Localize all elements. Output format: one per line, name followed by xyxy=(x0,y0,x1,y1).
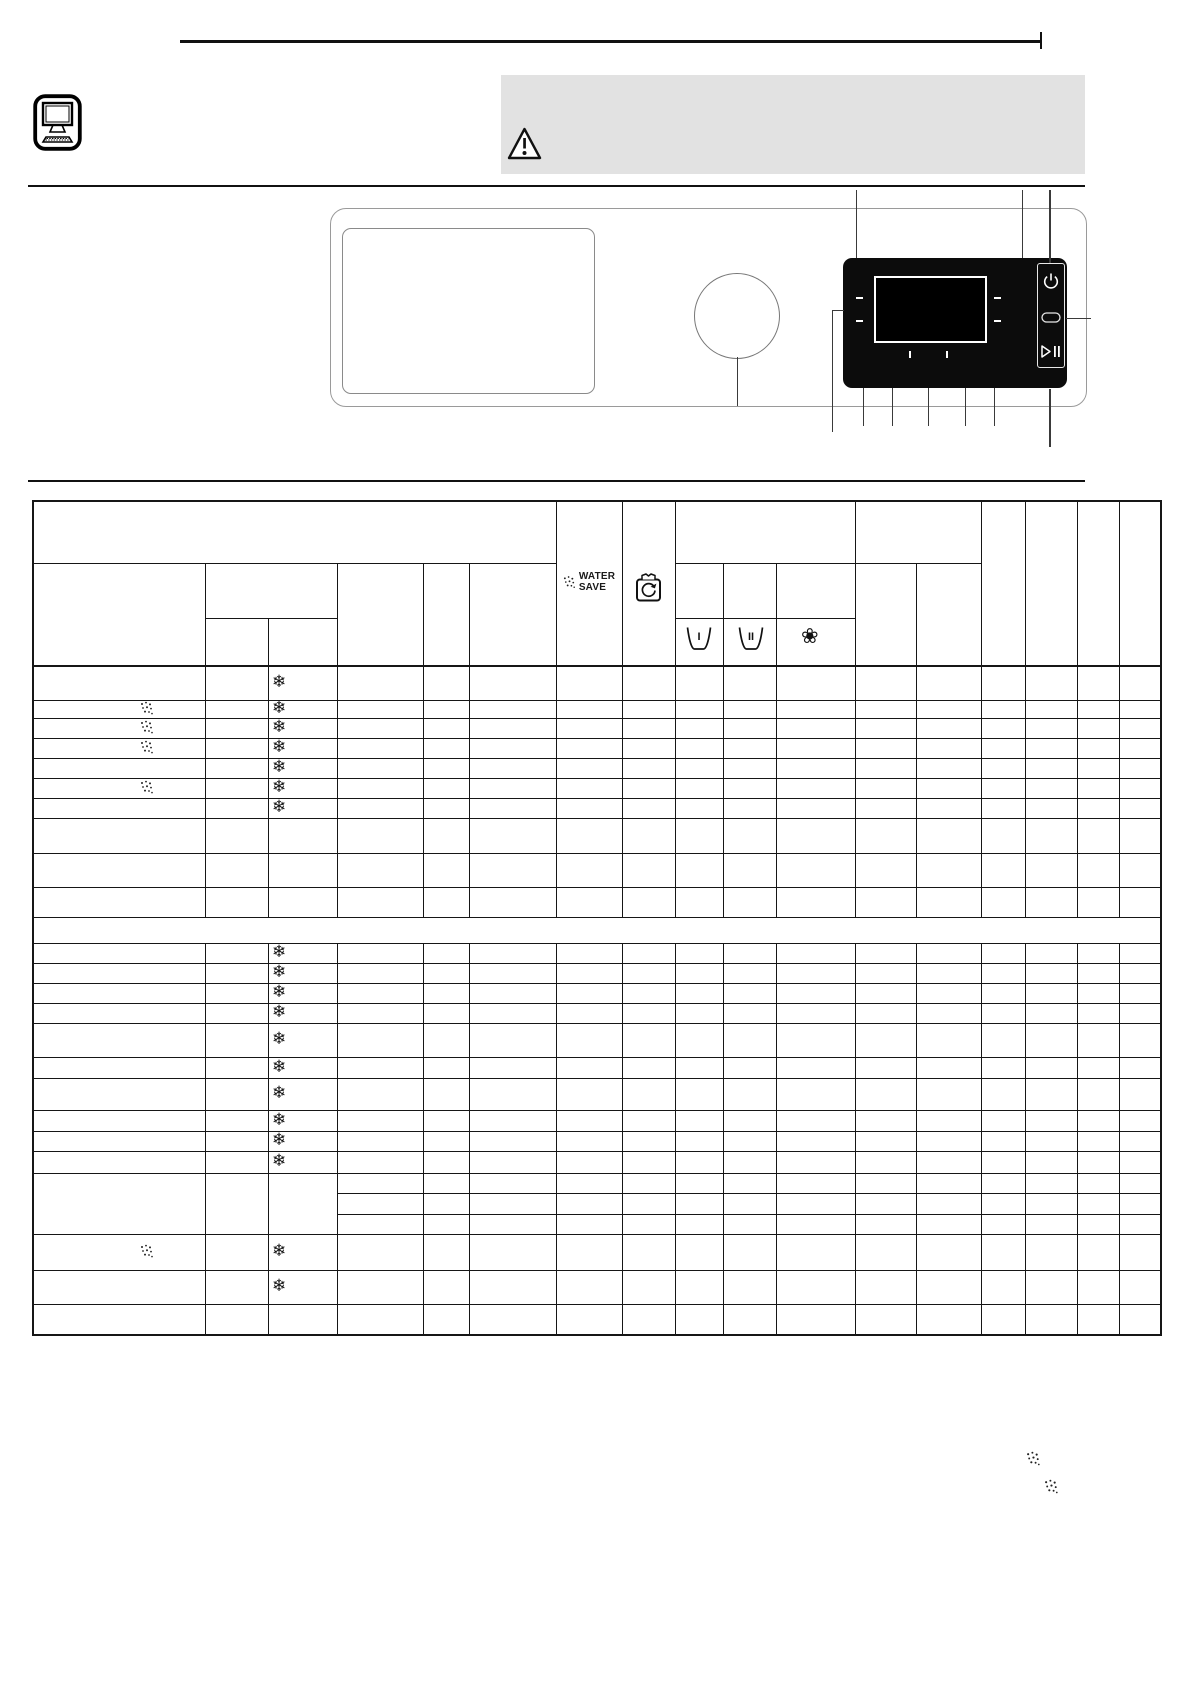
grid-vline xyxy=(1160,500,1162,1336)
cold-wash-snowflake-icon: ❄ xyxy=(272,700,286,717)
cold-wash-snowflake-icon: ❄ xyxy=(272,674,286,691)
program-knob xyxy=(694,273,780,359)
grid-vline xyxy=(1025,943,1026,1334)
callout-line xyxy=(856,190,857,258)
grid-vline xyxy=(855,500,856,917)
grid-vline xyxy=(1119,500,1120,917)
grid-hline xyxy=(32,983,1160,984)
water-spray-icon xyxy=(140,780,155,795)
button-tick xyxy=(946,351,948,358)
grid-hline xyxy=(32,758,1160,759)
grid-vline xyxy=(556,943,557,1334)
grid-vline xyxy=(337,943,338,1334)
cold-wash-snowflake-icon: ❄ xyxy=(272,799,286,816)
water-save-header: WATER SAVE xyxy=(556,560,622,604)
grid-vline xyxy=(622,943,623,1334)
grid-vline xyxy=(32,500,34,1336)
grid-vline xyxy=(981,943,982,1334)
callout-line xyxy=(1049,190,1051,263)
grid-hline xyxy=(32,700,1160,701)
grid-vline xyxy=(268,943,269,1334)
callout-line xyxy=(832,310,844,311)
grid-hline xyxy=(337,1193,1160,1194)
grid-vline xyxy=(776,563,777,917)
cold-wash-snowflake-icon: ❄ xyxy=(272,1004,286,1021)
warning-box xyxy=(501,75,1085,174)
grid-hline xyxy=(32,1334,1160,1336)
section-rule-1 xyxy=(28,185,1085,187)
callout-line-knob xyxy=(737,357,738,406)
grid-hline xyxy=(32,718,1160,719)
display-screen xyxy=(874,276,987,343)
cold-wash-snowflake-icon: ❄ xyxy=(272,1153,286,1170)
grid-vline xyxy=(916,563,917,917)
cold-wash-snowflake-icon: ❄ xyxy=(272,984,286,1001)
grid-hline xyxy=(32,943,1160,944)
grid-hline xyxy=(32,563,556,564)
grid-vline xyxy=(205,943,206,1334)
grid-hline xyxy=(32,887,1160,888)
cold-wash-snowflake-icon: ❄ xyxy=(272,1243,286,1260)
cold-wash-snowflake-icon: ❄ xyxy=(272,1031,286,1048)
display-tick xyxy=(994,320,1001,322)
display-tick xyxy=(856,320,863,322)
grid-hline xyxy=(205,618,337,619)
power-button-strip xyxy=(1037,263,1065,368)
cold-wash-snowflake-icon: ❄ xyxy=(272,719,286,736)
grid-hline xyxy=(32,1304,1160,1305)
cold-wash-snowflake-icon: ❄ xyxy=(272,779,286,796)
grid-vline xyxy=(1025,500,1026,917)
drum-wash-icon xyxy=(633,572,664,604)
grid-hline xyxy=(32,1110,1160,1111)
water-spray-icon xyxy=(140,1244,155,1259)
grid-vline xyxy=(916,943,917,1334)
grid-vline xyxy=(469,563,470,917)
grid-hline xyxy=(675,563,981,564)
grid-vline xyxy=(723,563,724,917)
grid-hline xyxy=(32,1173,1160,1174)
cold-wash-snowflake-icon: ❄ xyxy=(272,1278,286,1295)
water-spray-icon xyxy=(140,720,155,735)
grid-vline xyxy=(675,500,676,917)
grid-vline xyxy=(469,943,470,1334)
cold-wash-snowflake-icon: ❄ xyxy=(272,964,286,981)
detergent-drawer xyxy=(342,228,595,394)
door-pill-icon[interactable] xyxy=(1041,312,1061,323)
grid-vline xyxy=(205,563,206,917)
computer-monitor-icon xyxy=(33,94,82,151)
cold-wash-snowflake-icon: ❄ xyxy=(272,739,286,756)
grid-vline xyxy=(423,943,424,1334)
manual-page: ❄❄❄❄❄❄❄❄❄❄❄❄❄❄❄❄❄❄❄ WATER SAVE I II xyxy=(0,0,1191,1684)
grid-vline xyxy=(268,618,269,917)
grid-hline xyxy=(32,1003,1160,1004)
water-spray-icon xyxy=(563,575,577,590)
control-panel xyxy=(843,258,1067,388)
grid-hline xyxy=(32,798,1160,799)
grid-hline xyxy=(32,1151,1160,1152)
cold-wash-snowflake-icon: ❄ xyxy=(272,944,286,961)
grid-vline xyxy=(981,500,982,917)
callout-line xyxy=(994,388,995,426)
grid-hline xyxy=(32,917,1160,918)
cold-wash-snowflake-icon: ❄ xyxy=(272,759,286,776)
top-rule xyxy=(180,40,1042,43)
grid-vline xyxy=(423,563,424,917)
grid-vline xyxy=(622,500,623,917)
cold-wash-snowflake-icon: ❄ xyxy=(272,1112,286,1129)
grid-hline xyxy=(32,1078,1160,1079)
water-save-line1: WATER xyxy=(579,571,615,582)
grid-hline xyxy=(32,778,1160,779)
callout-line xyxy=(1066,318,1091,319)
top-rule-end-tick xyxy=(1040,32,1042,49)
display-tick xyxy=(856,297,863,299)
water-spray-icon xyxy=(1044,1479,1060,1495)
callout-line xyxy=(1022,190,1023,258)
grid-vline xyxy=(776,943,777,1334)
detergent-compartment-1: I xyxy=(684,626,714,654)
grid-hline xyxy=(32,1023,1160,1024)
grid-vline xyxy=(675,943,676,1334)
grid-hline xyxy=(32,818,1160,819)
display-tick xyxy=(994,297,1001,299)
grid-hline xyxy=(32,665,1160,667)
grid-hline xyxy=(32,500,1160,502)
grid-hline xyxy=(32,1057,1160,1058)
water-save-line2: SAVE xyxy=(579,582,615,593)
grid-vline xyxy=(723,943,724,1334)
callout-line xyxy=(863,388,864,426)
grid-hline xyxy=(32,1270,1160,1271)
grid-vline xyxy=(1077,943,1078,1334)
compartment-1-label: I xyxy=(684,631,714,643)
detergent-compartment-2: II xyxy=(736,626,766,654)
callout-line xyxy=(1049,389,1051,447)
cold-wash-snowflake-icon: ❄ xyxy=(272,1085,286,1102)
grid-hline xyxy=(337,1214,1160,1215)
callout-line xyxy=(928,388,929,426)
cold-wash-snowflake-icon: ❄ xyxy=(272,1132,286,1149)
cold-wash-snowflake-icon: ❄ xyxy=(272,1059,286,1076)
grid-hline xyxy=(32,738,1160,739)
softener-flower-icon: ❀ xyxy=(801,626,819,647)
grid-vline xyxy=(1119,943,1120,1334)
compartment-2-label: II xyxy=(736,631,766,643)
play-pause-icon[interactable] xyxy=(1040,344,1062,359)
callout-line xyxy=(832,310,833,432)
grid-vline xyxy=(337,563,338,917)
grid-vline xyxy=(1077,500,1078,917)
grid-hline xyxy=(32,1234,1160,1235)
grid-hline xyxy=(675,618,855,619)
grid-vline xyxy=(855,943,856,1334)
callout-line xyxy=(892,388,893,426)
warning-triangle-icon xyxy=(506,126,543,162)
water-spray-icon xyxy=(140,701,155,716)
water-spray-icon xyxy=(140,740,155,755)
power-icon[interactable] xyxy=(1042,272,1060,290)
callout-line xyxy=(965,388,966,426)
grid-hline xyxy=(32,1131,1160,1132)
section-rule-2 xyxy=(28,480,1085,482)
button-tick xyxy=(909,351,911,358)
water-spray-icon xyxy=(1026,1451,1042,1467)
grid-hline xyxy=(32,963,1160,964)
grid-hline xyxy=(32,853,1160,854)
